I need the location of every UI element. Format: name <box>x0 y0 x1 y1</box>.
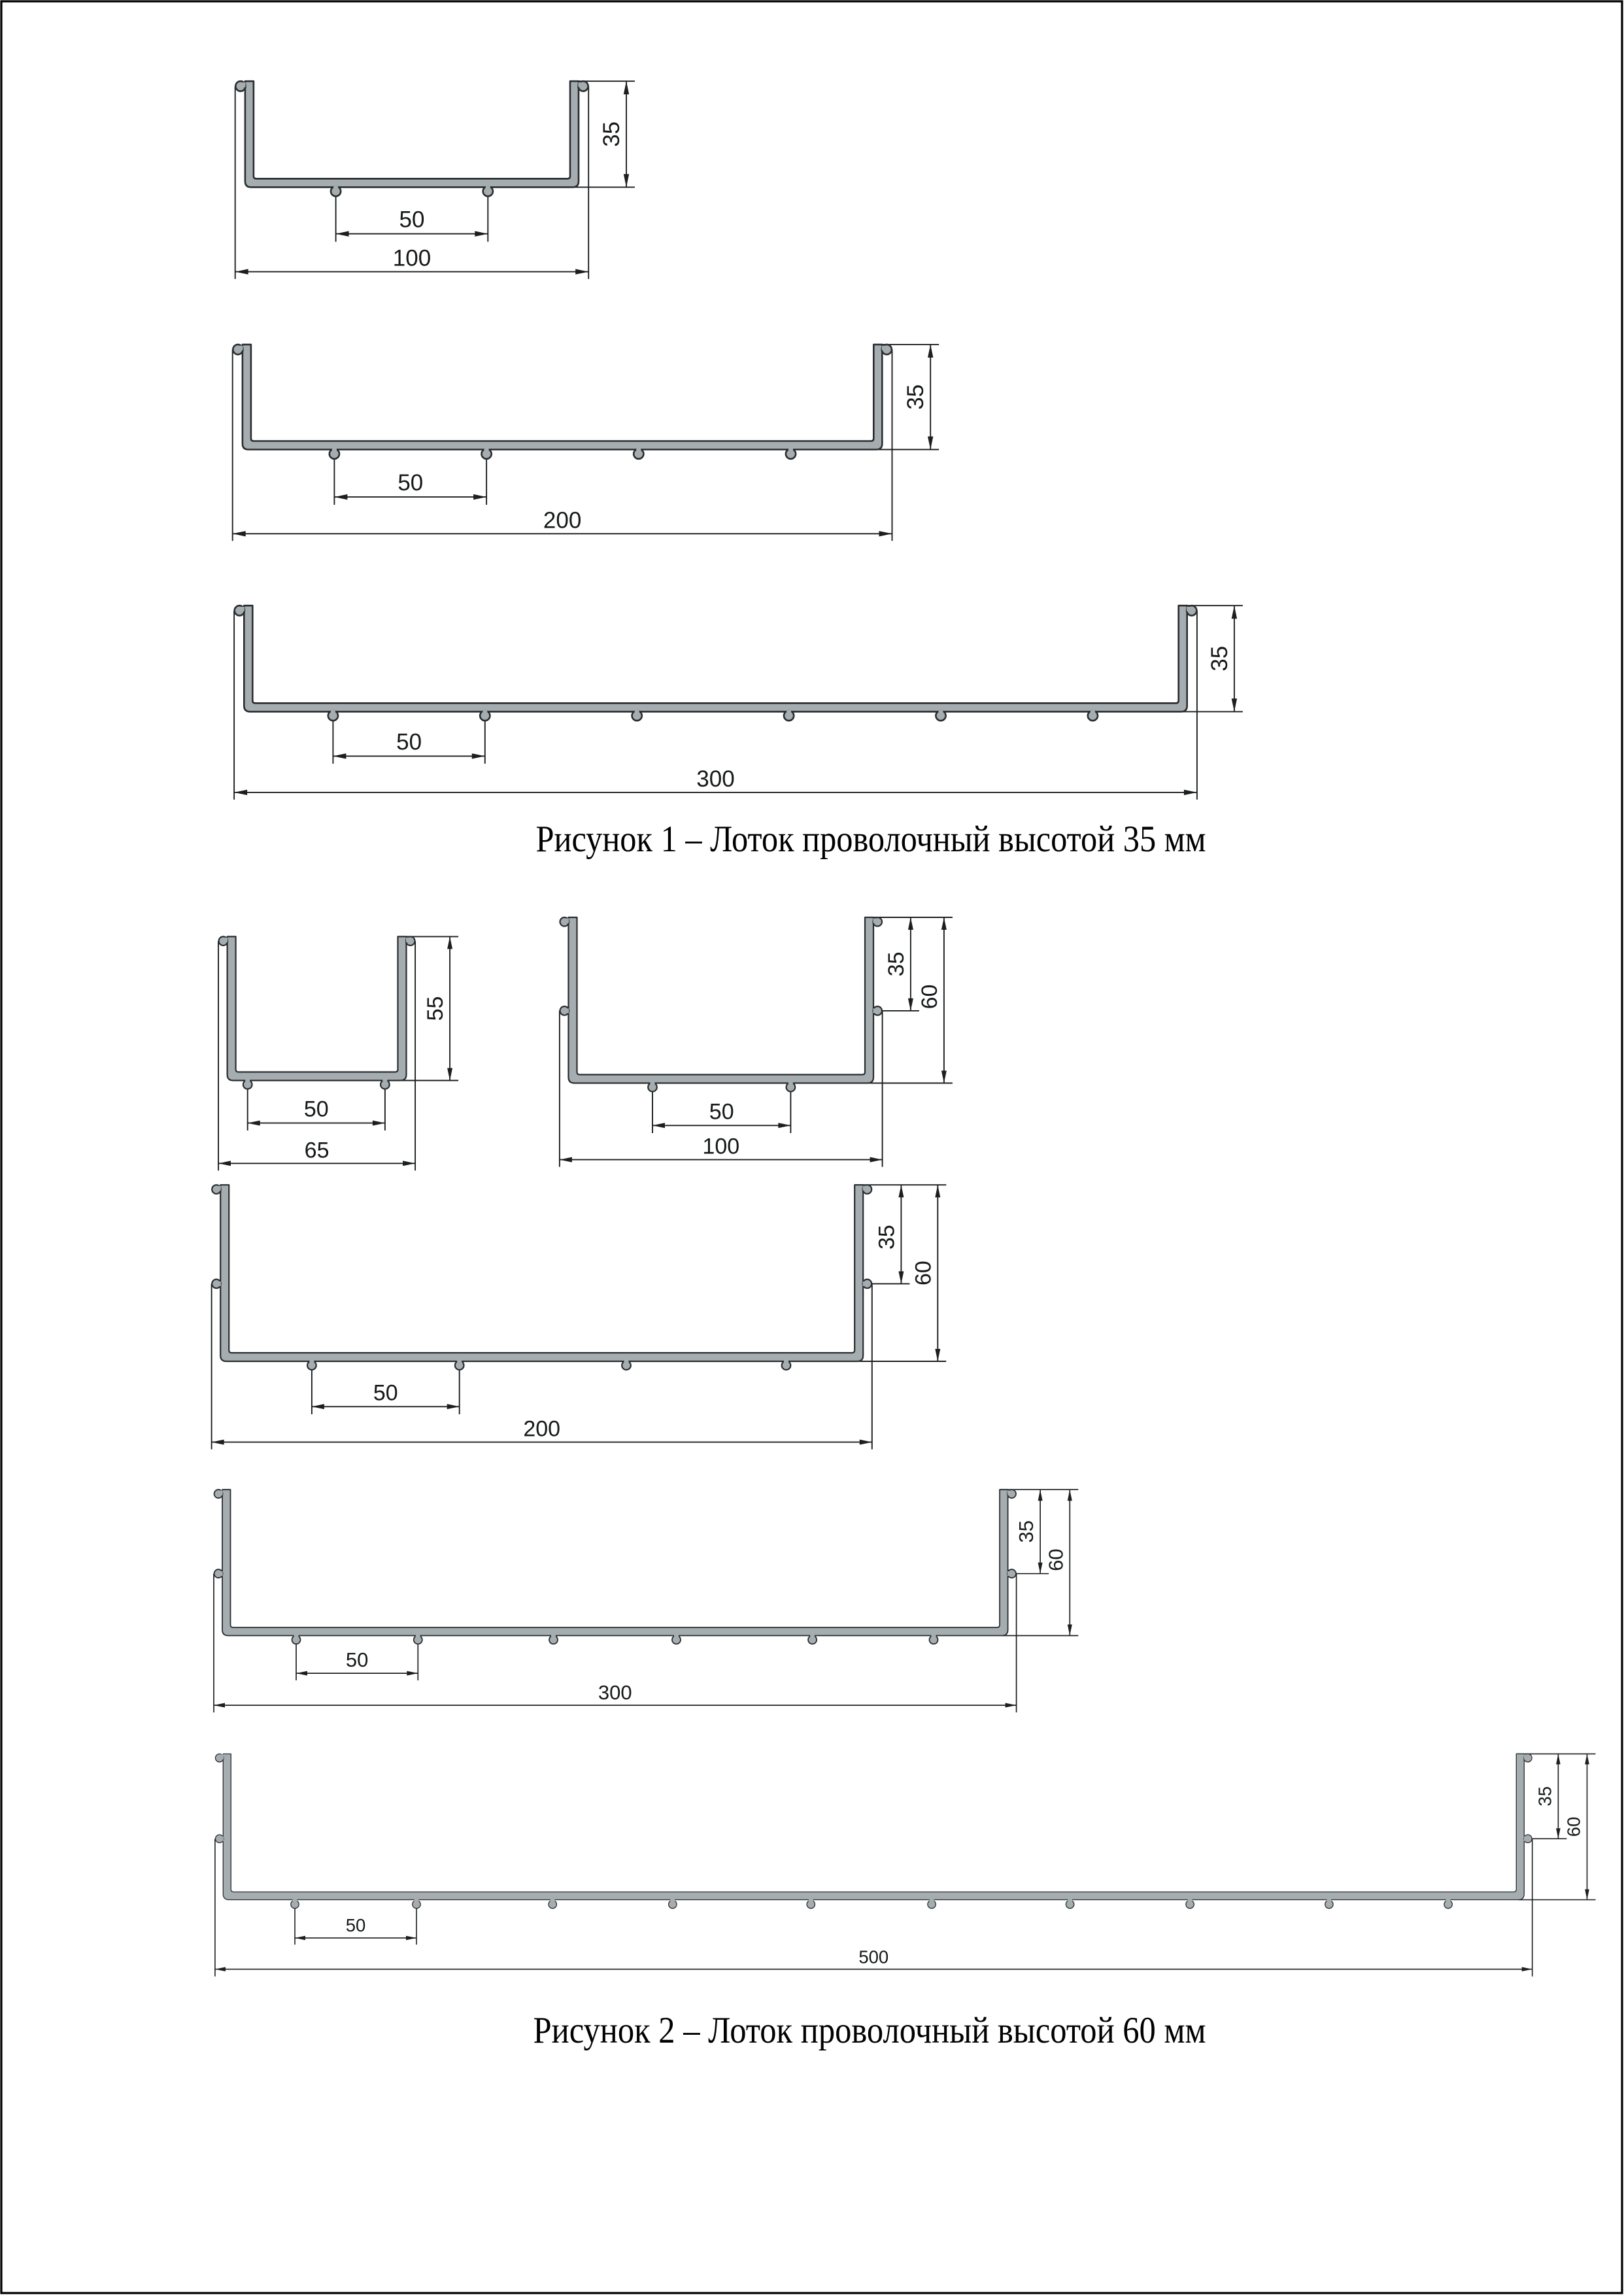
svg-text:55: 55 <box>423 996 448 1021</box>
svg-text:35: 35 <box>874 1225 899 1249</box>
svg-text:Рисунок 2 – Лоток проволочный: Рисунок 2 – Лоток проволочный высотой 60… <box>533 2010 1206 2051</box>
svg-text:35: 35 <box>1534 1786 1555 1807</box>
svg-text:200: 200 <box>523 1417 560 1442</box>
svg-text:50: 50 <box>346 1915 366 1935</box>
svg-text:60: 60 <box>911 1261 936 1285</box>
svg-text:500: 500 <box>858 1947 888 1967</box>
svg-text:50: 50 <box>346 1648 368 1671</box>
svg-text:Рисунок 1 – Лоток проволочный: Рисунок 1 – Лоток проволочный высотой 35… <box>536 819 1206 860</box>
svg-text:35: 35 <box>599 122 624 147</box>
svg-text:60: 60 <box>917 985 942 1010</box>
svg-text:60: 60 <box>1044 1548 1067 1571</box>
svg-text:50: 50 <box>373 1380 398 1405</box>
svg-text:50: 50 <box>709 1099 734 1124</box>
svg-text:100: 100 <box>702 1134 739 1159</box>
svg-text:300: 300 <box>598 1681 632 1704</box>
svg-text:50: 50 <box>304 1097 329 1122</box>
svg-text:50: 50 <box>396 729 422 755</box>
svg-text:35: 35 <box>1015 1520 1038 1542</box>
svg-text:50: 50 <box>399 207 425 233</box>
svg-text:200: 200 <box>543 507 581 533</box>
svg-text:50: 50 <box>398 470 423 496</box>
svg-text:35: 35 <box>903 384 928 410</box>
svg-text:65: 65 <box>305 1138 330 1163</box>
svg-text:35: 35 <box>1207 646 1232 671</box>
svg-text:300: 300 <box>696 766 734 792</box>
svg-text:60: 60 <box>1564 1817 1584 1837</box>
svg-text:100: 100 <box>393 246 431 271</box>
svg-text:35: 35 <box>884 952 909 977</box>
